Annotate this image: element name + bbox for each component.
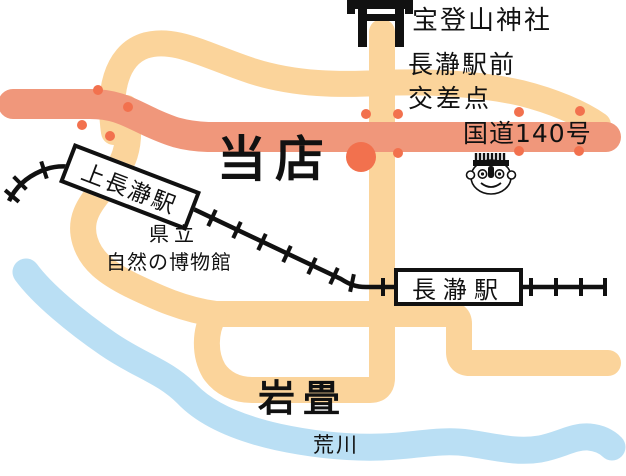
signal-dot <box>123 102 133 112</box>
signal-dot <box>393 148 403 158</box>
crossing-label-line2: 交差点 <box>408 86 492 111</box>
face-icon <box>467 153 516 194</box>
signal-dot <box>105 131 115 141</box>
museum-label-line2: 自然の博物館 <box>106 252 232 272</box>
signal-dot <box>514 107 524 117</box>
signal-dot <box>575 106 585 116</box>
nagatoro-station-box: 長瀞駅 <box>394 268 523 306</box>
arakawa-river-label: 荒川 <box>313 435 359 456</box>
railway-tick <box>350 274 354 292</box>
map-canvas: 上長瀞駅 長瀞駅 宝登山神社 長瀞駅前 交差点 国道140号 当店 県立 自然の… <box>0 0 626 476</box>
signal-dot <box>393 109 403 119</box>
shop-marker-dot <box>346 142 376 172</box>
shop-label: 当店 <box>217 135 333 184</box>
route-140-label: 国道140号 <box>463 121 592 146</box>
signal-dot <box>77 120 87 130</box>
crossing-label-line1: 長瀞駅前 <box>408 52 516 77</box>
signal-dot <box>93 85 103 95</box>
railway-tick <box>41 161 47 178</box>
nagatoro-station-label: 長瀞駅 <box>412 270 505 305</box>
shrine-label: 宝登山神社 <box>412 8 552 34</box>
signal-dot <box>361 109 371 119</box>
museum-label-line1: 県立 <box>149 224 199 244</box>
iwadatami-label: 岩畳 <box>258 380 348 417</box>
